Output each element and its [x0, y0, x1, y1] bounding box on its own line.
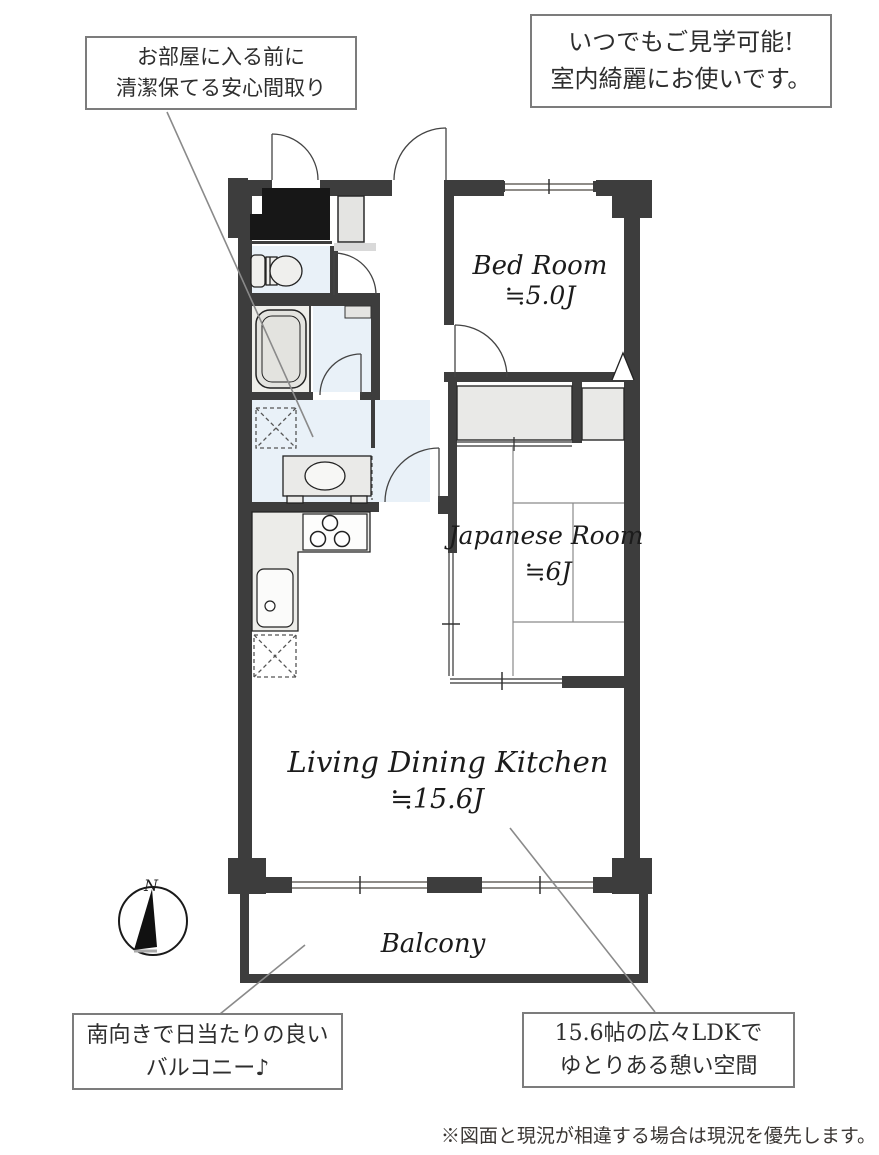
stove-fixture	[303, 514, 367, 550]
vanity-fixture	[283, 456, 371, 503]
wall-jroom-bottom	[562, 676, 624, 688]
toilet-door-arc	[334, 253, 376, 295]
closets	[457, 353, 634, 451]
anteroom-floor	[313, 306, 371, 392]
ldk-size-label: ≒15.6J	[390, 784, 486, 815]
balcony-label: Balcony	[380, 929, 486, 959]
compass: N	[119, 876, 187, 955]
wall-bath-bottom-a	[250, 392, 313, 400]
ldk-label: Living Dining Kitchen	[287, 745, 609, 779]
balcony-wall-left	[240, 894, 249, 982]
wall-washroom-right	[371, 400, 375, 448]
bedroom-label: Bed Room	[472, 251, 608, 281]
callout-line: 15.6帖の広々LDKで	[555, 1017, 763, 1050]
compass-north-label: N	[143, 876, 159, 895]
callout-line: 清潔保てる安心間取り	[116, 73, 326, 105]
callout-spacious-ldk: 15.6帖の広々LDKで ゆとりある憩い空間	[522, 1012, 795, 1088]
callout-line: 南向きで日当たりの良い	[86, 1019, 328, 1052]
wall-bottom-b	[427, 877, 482, 893]
wall-bottom-c	[593, 877, 624, 893]
wall-top-c	[444, 180, 504, 196]
callout-line: バルコニー♪	[146, 1052, 270, 1085]
balcony-wall-right	[639, 894, 648, 983]
shoe-cabinet	[338, 196, 364, 242]
jroom-closet	[457, 386, 572, 440]
jroom-left-sliding-door	[442, 553, 460, 676]
callout-line: 室内綺麗にお使いです。	[551, 61, 812, 98]
entrance-door-left-arc	[272, 134, 318, 180]
wall-closet-divider	[572, 382, 582, 443]
wall-bottom-a	[252, 877, 292, 893]
entrance-door-right-arc	[394, 128, 446, 180]
wall-top-b	[320, 180, 392, 196]
genkan-area	[250, 188, 330, 240]
anteroom-shelf	[345, 306, 371, 318]
bedroom-closet	[582, 388, 624, 440]
bedroom-window	[499, 179, 600, 194]
ldk-window-left	[292, 876, 427, 894]
wall-bedroom-bottom	[444, 372, 640, 382]
ldk-window-right	[482, 876, 593, 894]
wall-bath-right	[371, 306, 380, 400]
bathtub-fixture	[256, 306, 310, 392]
jroom-bottom-sliding-door	[450, 672, 562, 690]
bedroom-door-arc	[455, 325, 507, 377]
wall-bedroom-left	[444, 196, 454, 325]
floorplan-page: N Bed Room ≒5.0J Japanese Room ≒6J Livin…	[0, 0, 879, 1155]
entrance-step	[334, 243, 376, 251]
wall-bath-bottom-b	[360, 392, 380, 400]
wall-toilet-bottom	[250, 293, 380, 306]
callout-line: お部屋に入る前に	[137, 42, 305, 74]
callout-viewing-available: いつでもご見学可能! 室内綺麗にお使いです。	[530, 14, 832, 108]
kitchen-sink-fixture	[257, 569, 293, 627]
callout-south-balcony: 南向きで日当たりの良い バルコニー♪	[72, 1013, 343, 1090]
toilet-fixture	[251, 255, 302, 287]
callout-entrance-cleanliness: お部屋に入る前に 清潔保てる安心間取り	[85, 36, 357, 110]
callout-line: ゆとりある憩い空間	[559, 1050, 757, 1083]
genkan-edge-line	[250, 241, 332, 244]
japanese-room-size-label: ≒6J	[525, 557, 574, 586]
japanese-room-label: Japanese Room	[444, 521, 644, 550]
balcony-wall-bottom	[240, 974, 648, 983]
refrigerator-space	[254, 635, 296, 677]
bedroom-size-label: ≒5.0J	[505, 281, 578, 310]
floorplan-svg: N Bed Room ≒5.0J Japanese Room ≒6J Livin…	[0, 0, 879, 1155]
callout-line: いつでもご見学可能!	[568, 24, 794, 61]
disclaimer-note: ※図面と現況が相違する場合は現況を優先します。	[0, 1121, 876, 1148]
